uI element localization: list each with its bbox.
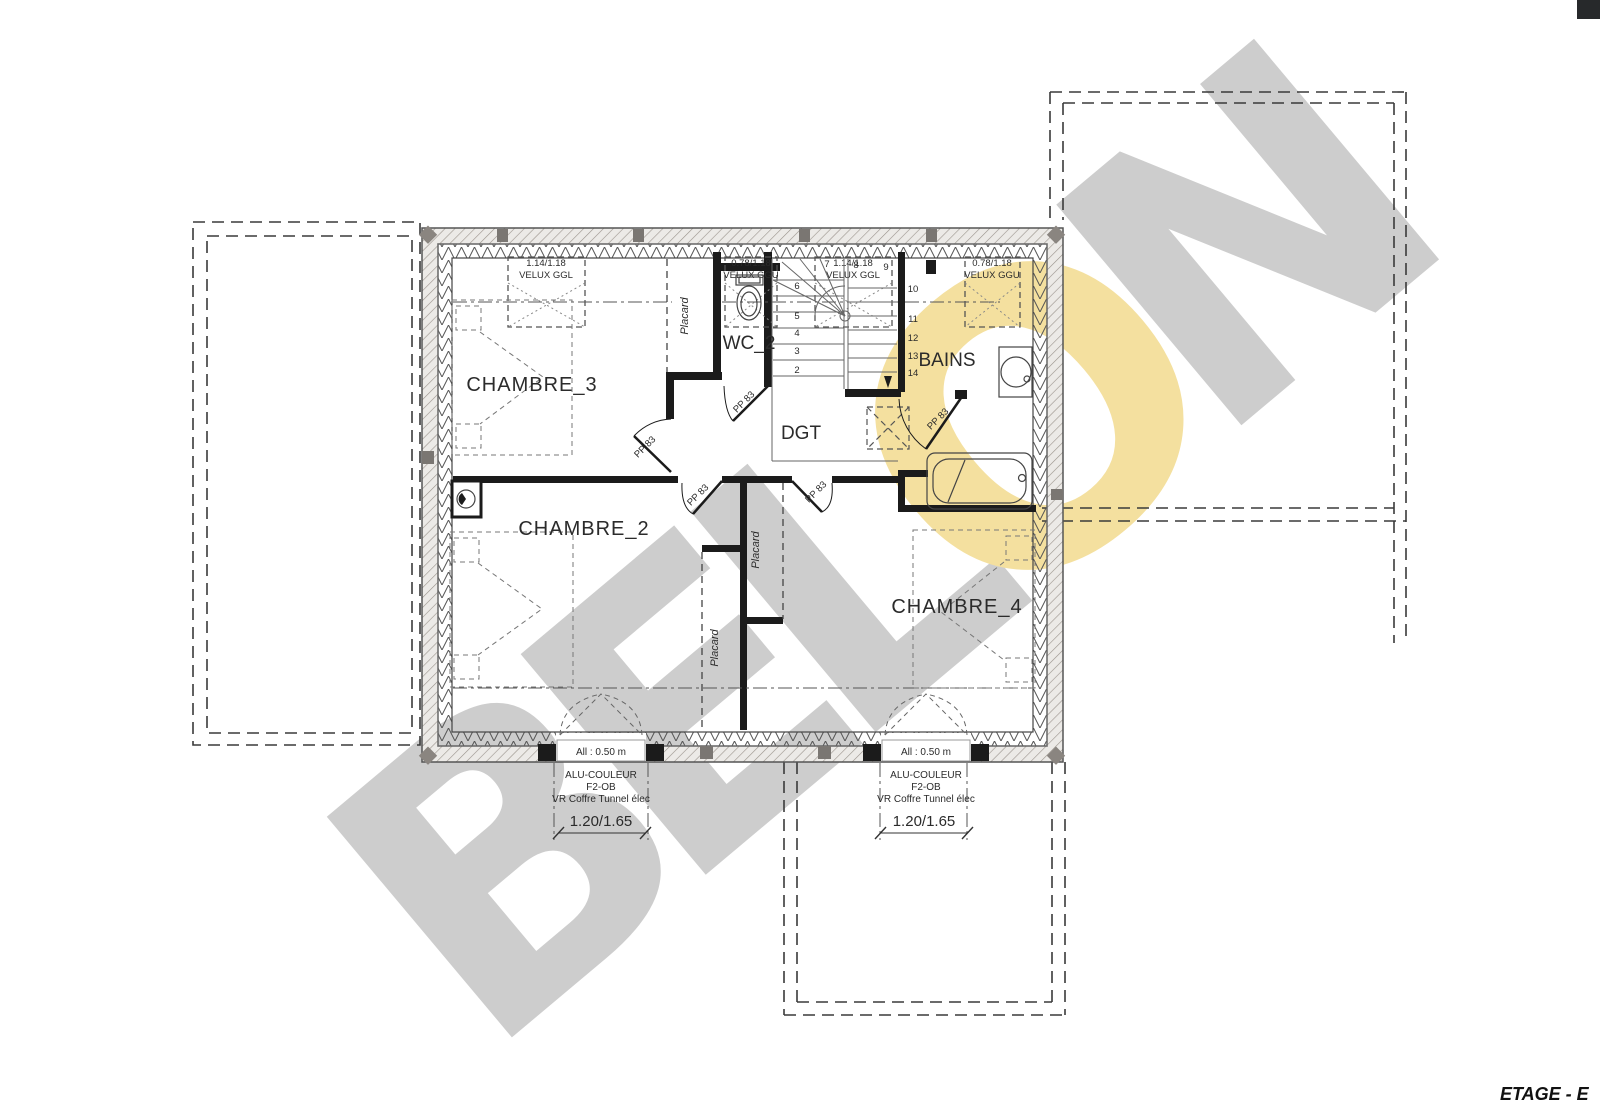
step-number: 14	[908, 368, 919, 379]
washing-machine-icon	[999, 347, 1032, 397]
floor-plan-drawing: 1.14/1.18 VELUX GGL 0.78/1.18 VELUX GGU …	[0, 0, 1600, 1109]
room-label-chambre4: CHAMBRE_4	[891, 596, 1022, 618]
roof-window-model: VELUX GGL	[826, 270, 880, 281]
room-label-dgt: DGT	[781, 423, 822, 444]
floor-opening-marker	[867, 407, 909, 449]
step-number: 9	[883, 262, 888, 273]
roof-window-model: VELUX GGU	[964, 270, 1020, 281]
window-note-line3: VR Coffre Tunnel élec	[877, 794, 975, 805]
step-number: 5	[794, 311, 799, 322]
step-number: 4	[794, 328, 799, 339]
room-label-chambre3: CHAMBRE_3	[466, 374, 597, 396]
step-number: 3	[794, 346, 799, 357]
roof-window-dim: 1.14/1.18	[526, 258, 566, 269]
bathtub-icon	[927, 453, 1032, 509]
step-number: 2	[794, 365, 799, 376]
window-dimension-chambre4: 1.20/1.65	[875, 813, 973, 839]
step-number: 7	[824, 259, 829, 270]
window-sill-label: All : 0.50 m	[576, 747, 626, 758]
step-number: 13	[908, 351, 919, 362]
floor-plan-page: BELON	[0, 0, 1600, 1109]
sheet-title: ETAGE - E	[1500, 1084, 1589, 1105]
window-chambre4: All : 0.50 m	[863, 694, 989, 761]
window-note-line3: VR Coffre Tunnel élec	[552, 794, 650, 805]
bed-chambre2	[450, 532, 573, 687]
toilet-icon	[736, 275, 763, 320]
step-number: 11	[908, 314, 918, 325]
window-dimension-chambre2: 1.20/1.65	[553, 813, 651, 839]
window-note-chambre2: ALU-COULEUR F2-OB VR Coffre Tunnel élec	[552, 770, 650, 805]
door-label: PP 83	[685, 482, 711, 508]
window-note-line1: ALU-COULEUR	[890, 770, 962, 781]
window-chambre2: All : 0.50 m	[538, 694, 664, 761]
step-number: 8	[853, 260, 858, 271]
page-corner-mark	[1577, 0, 1600, 19]
roof-window-dim: 0.78/1.18	[972, 258, 1012, 269]
roof-window-chambre3: 1.14/1.18 VELUX GGL	[508, 257, 585, 327]
room-label-chambre2: CHAMBRE_2	[518, 518, 649, 540]
step-number: 12	[908, 333, 919, 344]
window-note-line2: F2-OB	[586, 782, 616, 793]
window-dimension-label: 1.20/1.65	[893, 813, 956, 830]
left-annex-dashed-outline	[193, 222, 420, 745]
roof-window-model: VELUX GGL	[519, 270, 573, 281]
right-annex-dashed-outline	[1042, 92, 1406, 643]
closet-label-chambre4: Placard	[750, 530, 762, 568]
room-label-bains: BAINS	[918, 350, 975, 371]
closet-label-chambre2: Placard	[709, 628, 721, 666]
stair-direction-arrow	[884, 376, 892, 388]
interior-walls	[453, 252, 1036, 730]
roof-window-dim: 0.78/1.18	[731, 258, 771, 269]
closet-label-top: Placard	[679, 296, 691, 334]
flue-conduit-icon	[452, 481, 481, 517]
step-number: 6	[794, 281, 799, 292]
window-note-chambre4: ALU-COULEUR F2-OB VR Coffre Tunnel élec	[877, 770, 975, 805]
window-note-line1: ALU-COULEUR	[565, 770, 637, 781]
step-number: 10	[908, 284, 919, 295]
room-label-wc2: WC_2	[723, 333, 776, 354]
window-note-line2: F2-OB	[911, 782, 941, 793]
window-sill-label: All : 0.50 m	[901, 747, 951, 758]
door-label: PP 83	[803, 479, 829, 505]
window-dimension-label: 1.20/1.65	[570, 813, 633, 830]
roof-window-bains: 0.78/1.18 VELUX GGU	[964, 257, 1020, 327]
